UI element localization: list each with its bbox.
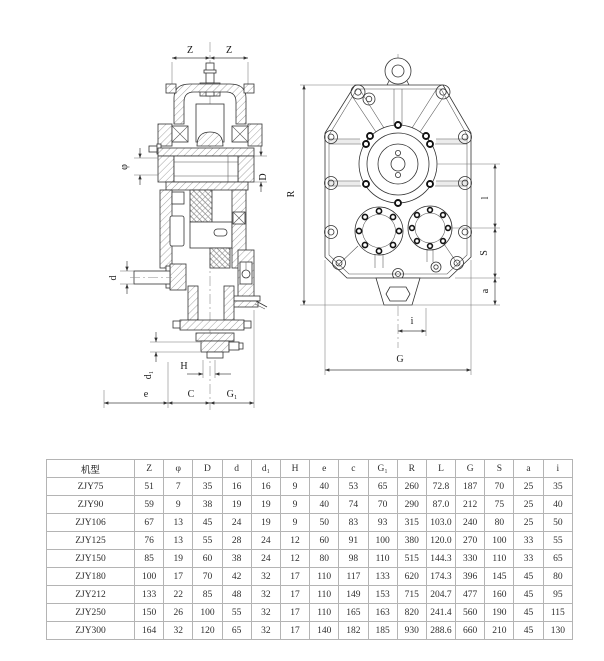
value-cell: 9 — [280, 514, 309, 532]
spec-table: 机型ZφDdd₁HecG₁RLGSai ZJY75517351616940536… — [46, 459, 573, 640]
value-cell: 93 — [368, 514, 397, 532]
value-cell: 164 — [135, 622, 164, 640]
value-cell: 290 — [397, 496, 426, 514]
dim-label-H: H — [180, 361, 187, 372]
dim-label-S: S — [479, 250, 490, 256]
column-header: G — [456, 460, 485, 478]
model-cell: ZJY150 — [47, 550, 135, 568]
value-cell: 163 — [368, 604, 397, 622]
value-cell: 85 — [135, 550, 164, 568]
dim-label-l: l — [480, 196, 491, 199]
value-cell: 75 — [485, 496, 514, 514]
value-cell: 17 — [280, 604, 309, 622]
value-cell: 930 — [397, 622, 426, 640]
value-cell: 17 — [164, 568, 193, 586]
value-cell: 85 — [193, 586, 222, 604]
value-cell: 53 — [339, 478, 368, 496]
model-cell: ZJY75 — [47, 478, 135, 496]
value-cell: 110 — [310, 586, 339, 604]
value-cell: 48 — [222, 586, 251, 604]
value-cell: 17 — [280, 586, 309, 604]
side-section-view: Z Z φ — [104, 42, 269, 410]
value-cell: 120.0 — [426, 532, 455, 550]
value-cell: 820 — [397, 604, 426, 622]
value-cell: 16 — [251, 478, 280, 496]
hex-drain-plug — [386, 287, 410, 301]
value-cell: 55 — [222, 604, 251, 622]
model-cell: ZJY90 — [47, 496, 135, 514]
dim-label-z-left: Z — [187, 45, 193, 56]
value-cell: 315 — [397, 514, 426, 532]
dim-label-G: G — [396, 354, 403, 365]
spec-table-body: ZJY75517351616940536526072.8187702535ZJY… — [47, 478, 573, 640]
value-cell: 70 — [193, 568, 222, 586]
dim-label-e: e — [144, 389, 149, 400]
table-row: ZJY1508519603824128098110515144.33301103… — [47, 550, 573, 568]
value-cell: 210 — [485, 622, 514, 640]
dim-label-i: i — [411, 316, 414, 327]
value-cell: 477 — [456, 586, 485, 604]
value-cell: 12 — [280, 550, 309, 568]
value-cell: 45 — [514, 568, 543, 586]
page: Z Z φ — [0, 0, 604, 661]
table-row: ZJY25015026100553217110165163820241.4560… — [47, 604, 573, 622]
value-cell: 182 — [339, 622, 368, 640]
value-cell: 110 — [310, 568, 339, 586]
column-header: d₁ — [251, 460, 280, 478]
column-header: c — [339, 460, 368, 478]
value-cell: 38 — [193, 496, 222, 514]
value-cell: 19 — [251, 496, 280, 514]
value-cell: 130 — [543, 622, 572, 640]
dim-label-D: D — [258, 173, 269, 180]
value-cell: 50 — [310, 514, 339, 532]
value-cell: 59 — [135, 496, 164, 514]
dim-label-d: d — [108, 276, 119, 281]
value-cell: 87.0 — [426, 496, 455, 514]
table-row: ZJY1257613552824126091100380120.02701003… — [47, 532, 573, 550]
value-cell: 120 — [193, 622, 222, 640]
value-cell: 80 — [543, 568, 572, 586]
value-cell: 25 — [514, 514, 543, 532]
value-cell: 190 — [485, 604, 514, 622]
value-cell: 60 — [310, 532, 339, 550]
value-cell: 32 — [164, 622, 193, 640]
value-cell: 9 — [280, 478, 309, 496]
value-cell: 288.6 — [426, 622, 455, 640]
value-cell: 100 — [485, 532, 514, 550]
value-cell: 70 — [485, 478, 514, 496]
value-cell: 100 — [368, 532, 397, 550]
technical-drawing: Z Z φ — [0, 0, 604, 452]
value-cell: 380 — [397, 532, 426, 550]
column-header: D — [193, 460, 222, 478]
value-cell: 40 — [310, 478, 339, 496]
value-cell: 25 — [514, 496, 543, 514]
model-cell: ZJY180 — [47, 568, 135, 586]
value-cell: 19 — [251, 514, 280, 532]
value-cell: 19 — [222, 496, 251, 514]
value-cell: 26 — [164, 604, 193, 622]
value-cell: 100 — [193, 604, 222, 622]
dim-label-a: a — [480, 288, 491, 293]
value-cell: 110 — [485, 550, 514, 568]
value-cell: 32 — [251, 604, 280, 622]
value-cell: 133 — [368, 568, 397, 586]
value-cell: 76 — [135, 532, 164, 550]
value-cell: 133 — [135, 586, 164, 604]
value-cell: 51 — [135, 478, 164, 496]
value-cell: 396 — [456, 568, 485, 586]
value-cell: 33 — [514, 550, 543, 568]
value-cell: 67 — [135, 514, 164, 532]
column-header: Z — [135, 460, 164, 478]
value-cell: 270 — [456, 532, 485, 550]
dim-label-d1: d₁ — [143, 371, 154, 380]
value-cell: 144.3 — [426, 550, 455, 568]
column-header: G₁ — [368, 460, 397, 478]
value-cell: 35 — [193, 478, 222, 496]
value-cell: 24 — [251, 532, 280, 550]
value-cell: 55 — [543, 532, 572, 550]
value-cell: 165 — [339, 604, 368, 622]
value-cell: 45 — [514, 604, 543, 622]
value-cell: 149 — [339, 586, 368, 604]
value-cell: 95 — [543, 586, 572, 604]
table-row: ZJY90599381919940747029087.0212752540 — [47, 496, 573, 514]
model-cell: ZJY212 — [47, 586, 135, 604]
table-row: ZJY1801001770423217110117133620174.33961… — [47, 568, 573, 586]
value-cell: 32 — [251, 586, 280, 604]
model-cell: ZJY106 — [47, 514, 135, 532]
value-cell: 9 — [164, 496, 193, 514]
value-cell: 91 — [339, 532, 368, 550]
value-cell: 204.7 — [426, 586, 455, 604]
value-cell: 22 — [164, 586, 193, 604]
value-cell: 174.3 — [426, 568, 455, 586]
value-cell: 19 — [164, 550, 193, 568]
value-cell: 715 — [397, 586, 426, 604]
table-row: ZJY10667134524199508393315103.0240802550 — [47, 514, 573, 532]
value-cell: 140 — [310, 622, 339, 640]
value-cell: 45 — [514, 586, 543, 604]
value-cell: 16 — [222, 478, 251, 496]
table-row: ZJY30016432120653217140182185930288.6660… — [47, 622, 573, 640]
value-cell: 45 — [193, 514, 222, 532]
value-cell: 110 — [368, 550, 397, 568]
value-cell: 45 — [514, 622, 543, 640]
value-cell: 150 — [135, 604, 164, 622]
value-cell: 98 — [339, 550, 368, 568]
column-header: d — [222, 460, 251, 478]
value-cell: 17 — [280, 622, 309, 640]
value-cell: 65 — [222, 622, 251, 640]
dim-label-phi: φ — [119, 164, 130, 170]
value-cell: 28 — [222, 532, 251, 550]
value-cell: 17 — [280, 568, 309, 586]
value-cell: 32 — [251, 622, 280, 640]
column-header: i — [543, 460, 572, 478]
value-cell: 13 — [164, 532, 193, 550]
value-cell: 241.4 — [426, 604, 455, 622]
value-cell: 117 — [339, 568, 368, 586]
dim-label-R: R — [286, 190, 297, 197]
value-cell: 100 — [135, 568, 164, 586]
front-view: R l S a i G — [286, 54, 500, 375]
column-header: φ — [164, 460, 193, 478]
value-cell: 240 — [456, 514, 485, 532]
value-cell: 330 — [456, 550, 485, 568]
value-cell: 160 — [485, 586, 514, 604]
value-cell: 145 — [485, 568, 514, 586]
value-cell: 80 — [310, 550, 339, 568]
table-row: ZJY75517351616940536526072.8187702535 — [47, 478, 573, 496]
value-cell: 660 — [456, 622, 485, 640]
value-cell: 33 — [514, 532, 543, 550]
value-cell: 24 — [251, 550, 280, 568]
value-cell: 70 — [368, 496, 397, 514]
model-cell: ZJY125 — [47, 532, 135, 550]
value-cell: 40 — [543, 496, 572, 514]
value-cell: 560 — [456, 604, 485, 622]
value-cell: 110 — [310, 604, 339, 622]
value-cell: 7 — [164, 478, 193, 496]
value-cell: 60 — [193, 550, 222, 568]
value-cell: 32 — [251, 568, 280, 586]
value-cell: 187 — [456, 478, 485, 496]
value-cell: 74 — [339, 496, 368, 514]
column-header: H — [280, 460, 309, 478]
value-cell: 65 — [368, 478, 397, 496]
value-cell: 80 — [485, 514, 514, 532]
model-cell: ZJY300 — [47, 622, 135, 640]
column-header: e — [310, 460, 339, 478]
value-cell: 212 — [456, 496, 485, 514]
value-cell: 9 — [280, 496, 309, 514]
value-cell: 35 — [543, 478, 572, 496]
column-header: S — [485, 460, 514, 478]
value-cell: 40 — [310, 496, 339, 514]
value-cell: 24 — [222, 514, 251, 532]
value-cell: 55 — [193, 532, 222, 550]
spec-table-head-row: 机型ZφDdd₁HecG₁RLGSai — [47, 460, 573, 478]
value-cell: 153 — [368, 586, 397, 604]
value-cell: 620 — [397, 568, 426, 586]
value-cell: 185 — [368, 622, 397, 640]
column-header: L — [426, 460, 455, 478]
value-cell: 42 — [222, 568, 251, 586]
value-cell: 12 — [280, 532, 309, 550]
dim-label-z-right: Z — [226, 45, 232, 56]
table-row: ZJY2121332285483217110149153715204.74771… — [47, 586, 573, 604]
value-cell: 72.8 — [426, 478, 455, 496]
column-header: R — [397, 460, 426, 478]
value-cell: 65 — [543, 550, 572, 568]
value-cell: 83 — [339, 514, 368, 532]
value-cell: 515 — [397, 550, 426, 568]
value-cell: 38 — [222, 550, 251, 568]
dim-label-G1: G₁ — [227, 389, 238, 400]
value-cell: 103.0 — [426, 514, 455, 532]
value-cell: 13 — [164, 514, 193, 532]
value-cell: 25 — [514, 478, 543, 496]
column-header: a — [514, 460, 543, 478]
value-cell: 50 — [543, 514, 572, 532]
model-cell: ZJY250 — [47, 604, 135, 622]
dim-label-C: C — [188, 389, 195, 400]
value-cell: 260 — [397, 478, 426, 496]
column-header: 机型 — [47, 460, 135, 478]
value-cell: 115 — [543, 604, 572, 622]
